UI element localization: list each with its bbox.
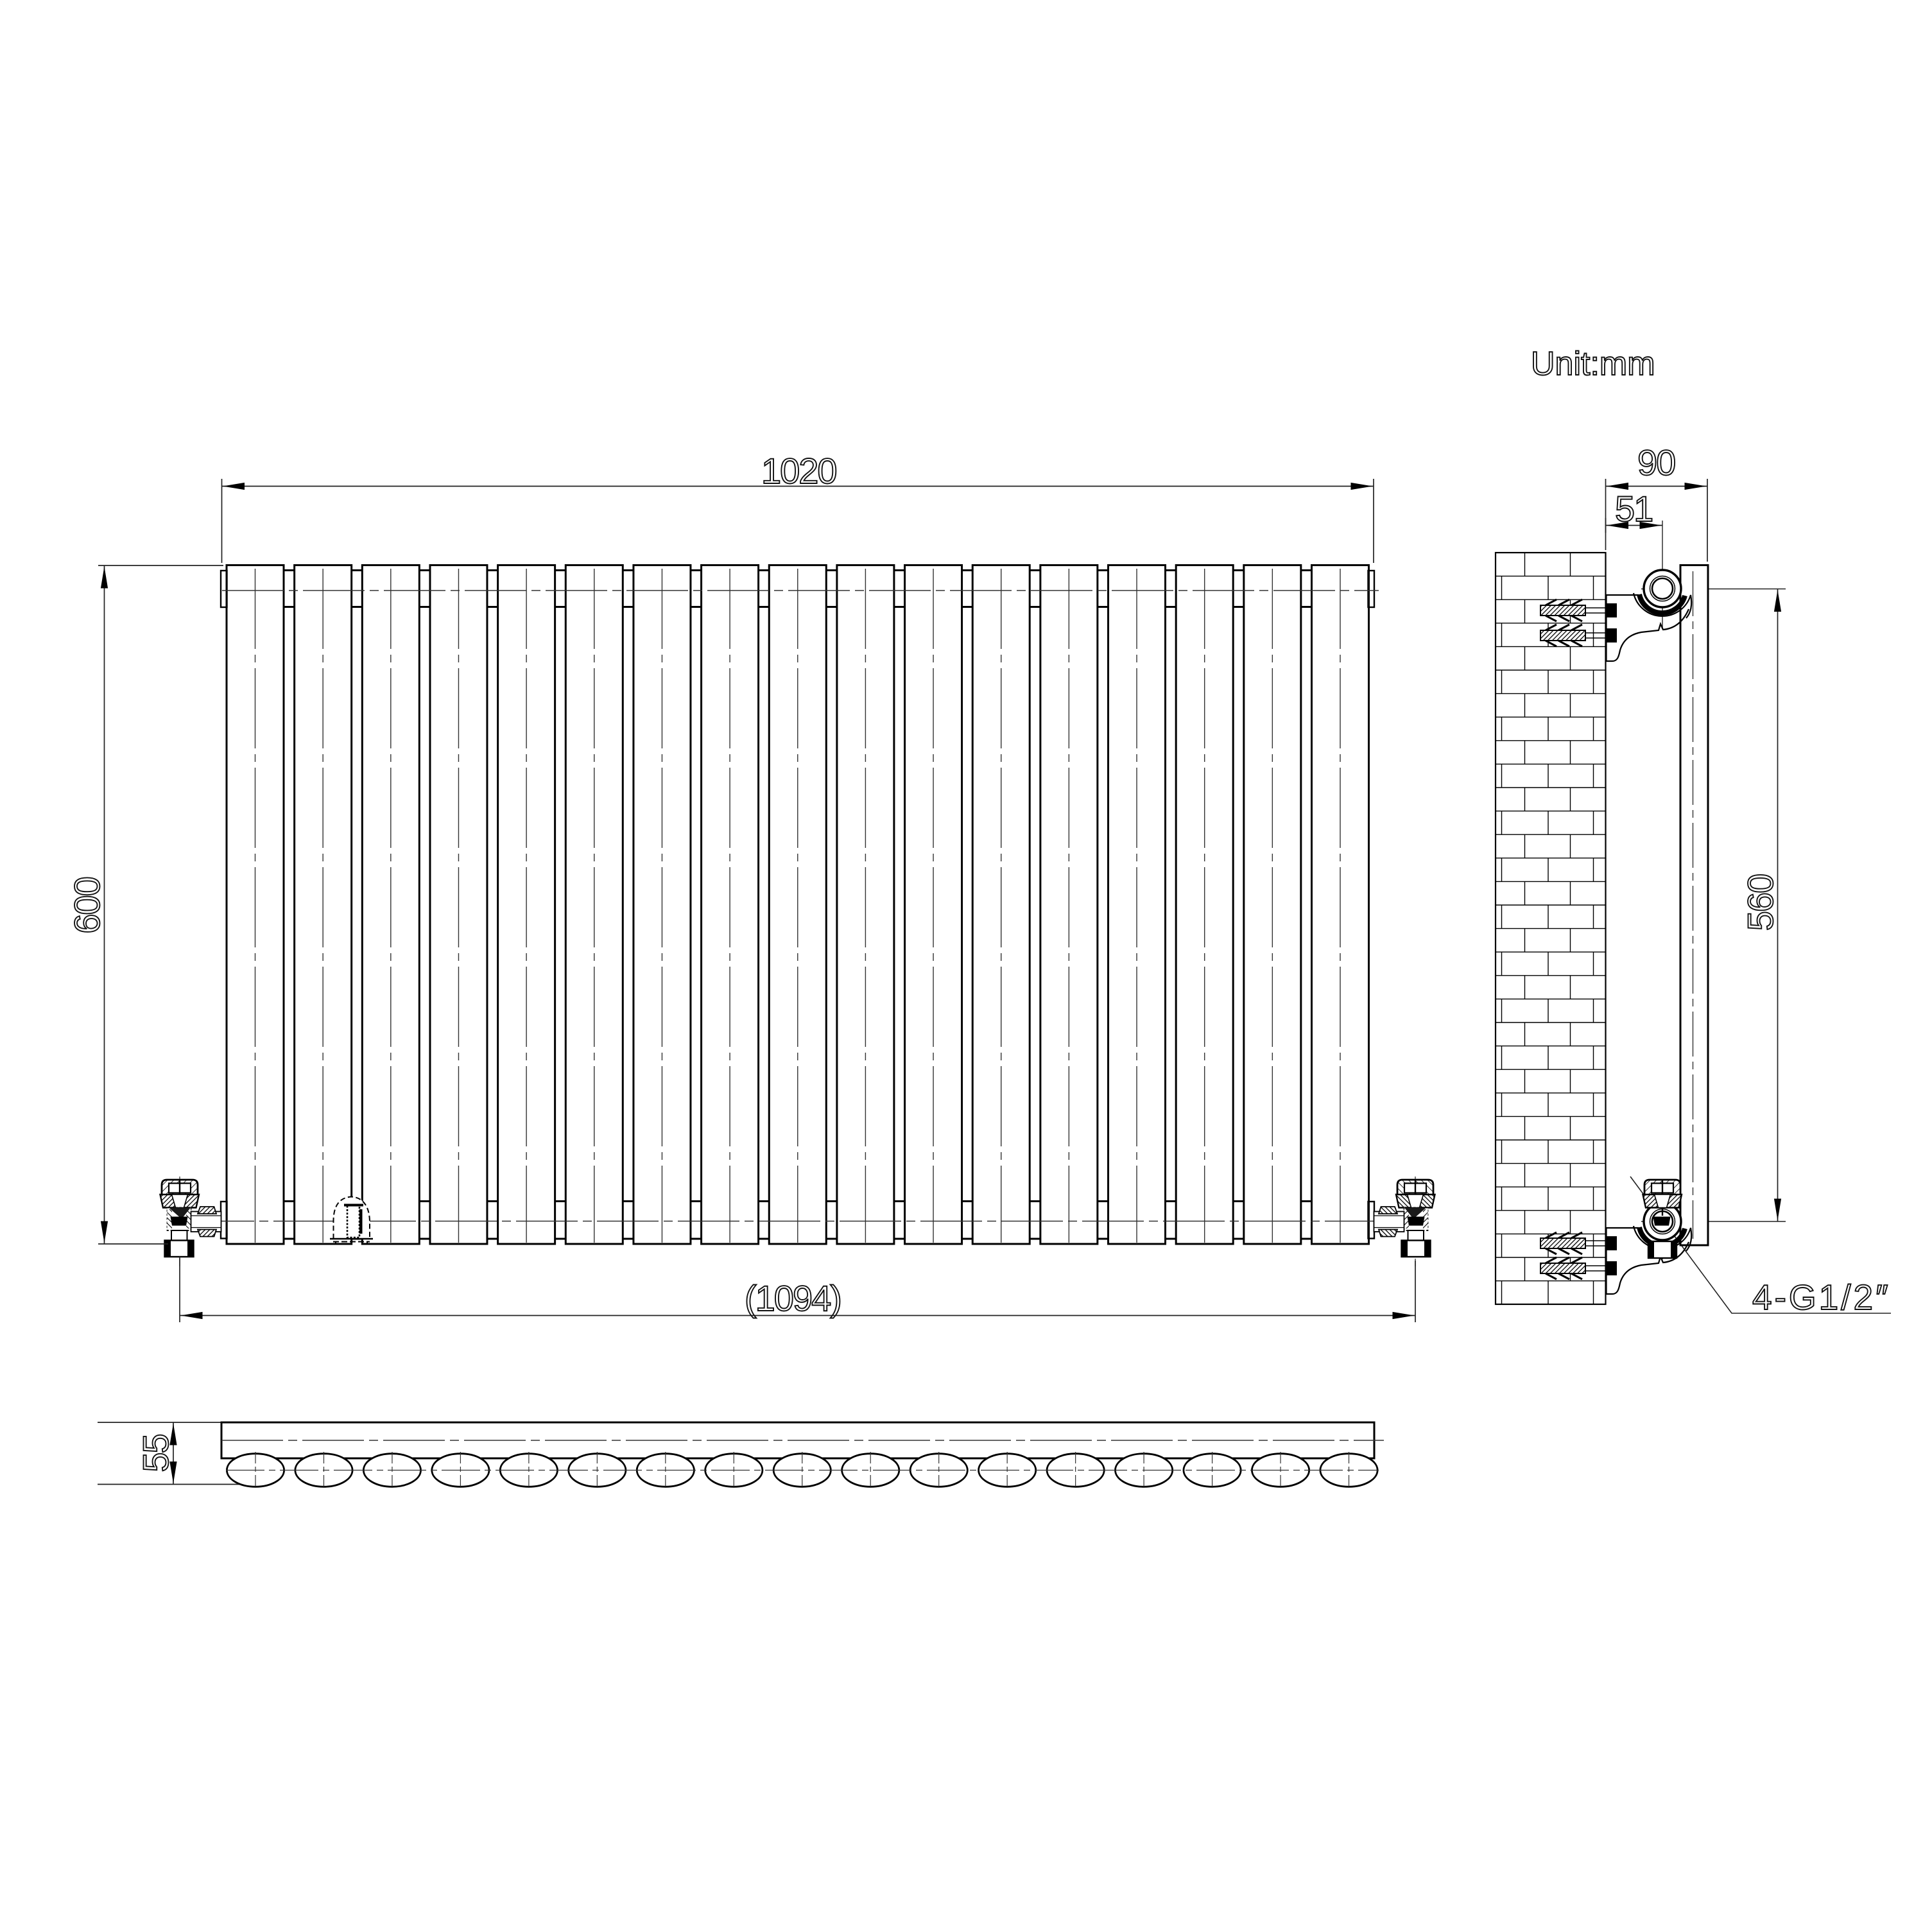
svg-text:51: 51 <box>1615 488 1652 529</box>
svg-text:1020: 1020 <box>761 451 836 491</box>
svg-text:55: 55 <box>135 1435 176 1472</box>
svg-text:560: 560 <box>1740 875 1781 931</box>
svg-text:Unit:mm: Unit:mm <box>1531 345 1655 383</box>
svg-text:90: 90 <box>1637 442 1675 483</box>
svg-text:(1094): (1094) <box>745 1278 841 1318</box>
svg-text:600: 600 <box>67 877 107 933</box>
svg-text:4-G1/2″: 4-G1/2″ <box>1752 1277 1891 1317</box>
